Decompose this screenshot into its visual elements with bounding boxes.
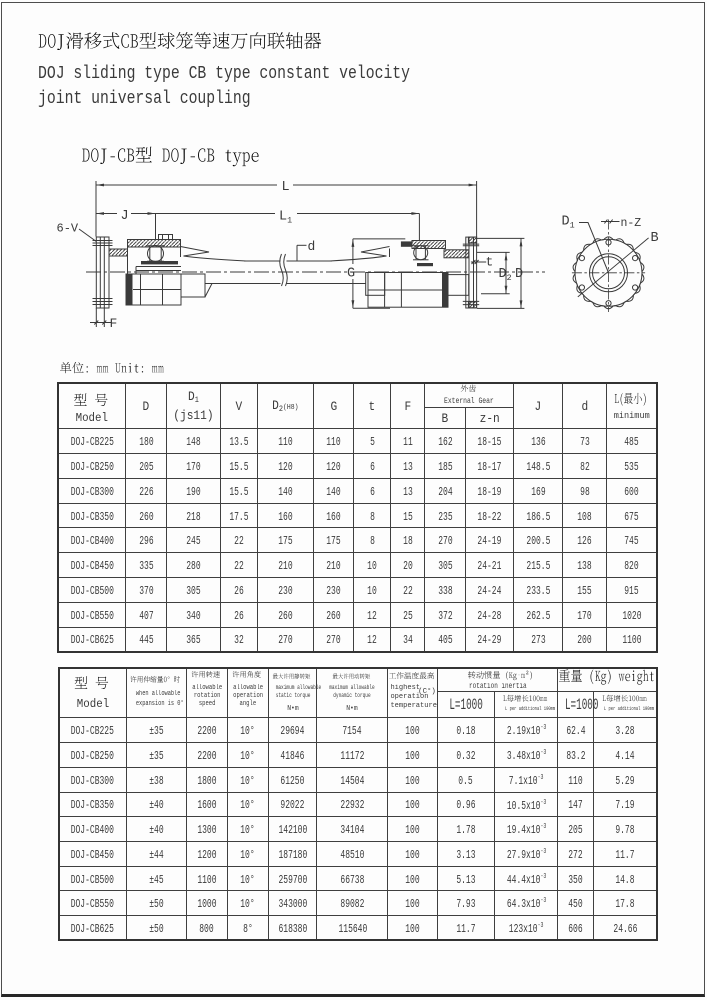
svg-text:D2: D2 xyxy=(499,267,512,283)
svg-text:B: B xyxy=(651,231,659,246)
svg-text:6-V: 6-V xyxy=(57,222,79,236)
svg-text:L1: L1 xyxy=(279,210,292,226)
svg-text:d: d xyxy=(308,239,316,254)
svg-text:F: F xyxy=(110,316,118,331)
svg-text:D: D xyxy=(515,267,523,282)
svg-text:n-Z: n-Z xyxy=(621,217,642,230)
svg-text:J: J xyxy=(121,209,129,224)
svg-text:t: t xyxy=(486,255,494,270)
svg-text:G: G xyxy=(347,267,355,282)
svg-text:L: L xyxy=(282,180,290,195)
svg-text:D1: D1 xyxy=(562,215,575,231)
